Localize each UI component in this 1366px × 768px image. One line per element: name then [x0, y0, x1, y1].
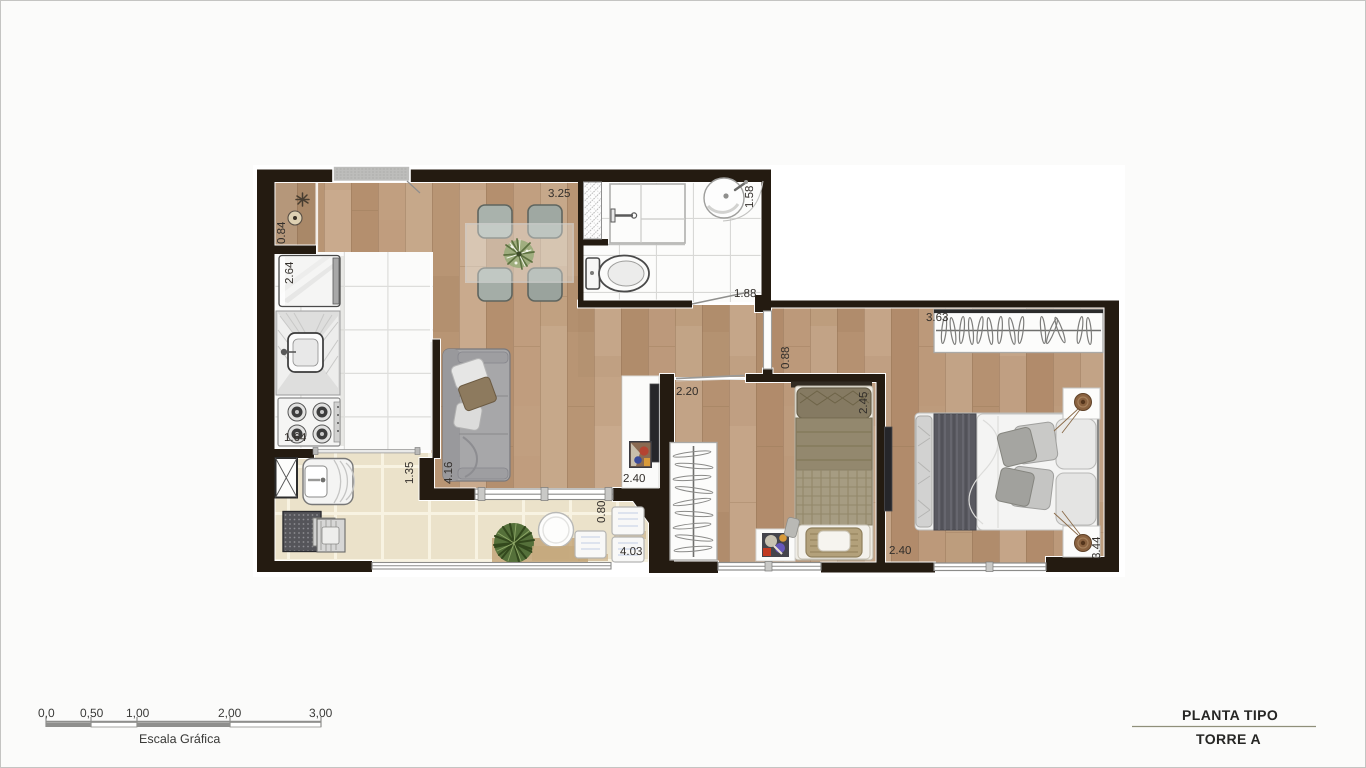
svg-text:1.88: 1.88	[734, 288, 756, 300]
svg-text:3,00: 3,00	[309, 706, 333, 720]
svg-text:0.80: 0.80	[596, 501, 608, 523]
svg-text:0.84: 0.84	[276, 221, 288, 244]
svg-text:1.35: 1.35	[404, 462, 416, 484]
svg-text:4.03: 4.03	[620, 546, 642, 558]
svg-text:4.16: 4.16	[443, 462, 455, 484]
svg-text:3.25: 3.25	[548, 188, 570, 200]
svg-text:2.40: 2.40	[623, 473, 645, 485]
svg-text:0.88: 0.88	[780, 347, 792, 369]
svg-text:2.64: 2.64	[284, 261, 296, 284]
svg-text:PLANTA TIPO: PLANTA TIPO	[1182, 707, 1278, 723]
svg-text:0,50: 0,50	[80, 706, 104, 720]
svg-text:TORRE A: TORRE A	[1196, 731, 1261, 747]
svg-text:3.44: 3.44	[1091, 536, 1103, 559]
svg-text:1.58: 1.58	[744, 186, 756, 208]
svg-text:2.20: 2.20	[676, 386, 698, 398]
svg-text:2.45: 2.45	[858, 392, 870, 414]
svg-text:2.40: 2.40	[889, 545, 911, 557]
svg-text:1,00: 1,00	[126, 706, 150, 720]
svg-text:Escala Gráfica: Escala Gráfica	[139, 732, 220, 746]
svg-text:2,00: 2,00	[218, 706, 242, 720]
svg-text:1.64: 1.64	[284, 432, 307, 444]
svg-text:0,0: 0,0	[38, 706, 55, 720]
svg-text:3.63: 3.63	[926, 312, 948, 324]
